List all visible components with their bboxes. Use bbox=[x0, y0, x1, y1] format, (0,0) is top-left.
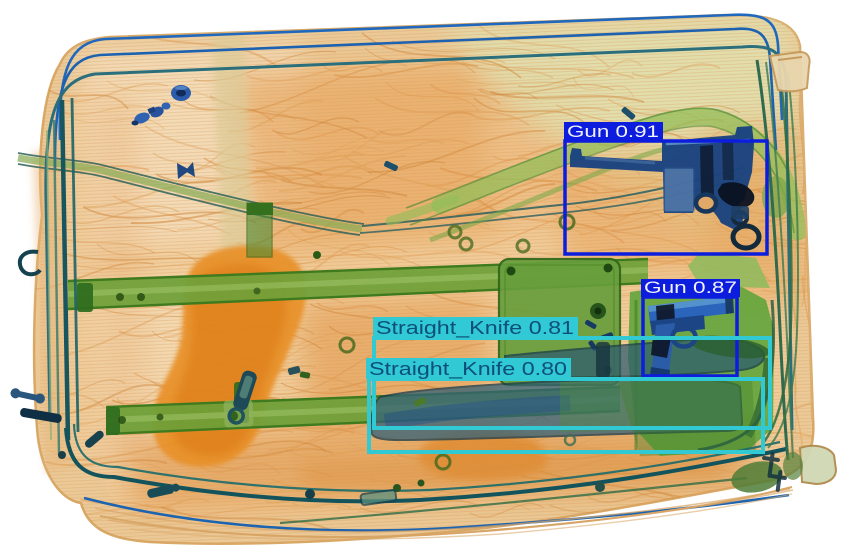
svg-text:Gun 0.87: Gun 0.87 bbox=[644, 278, 737, 297]
svg-text:Straight_Knife 0.81: Straight_Knife 0.81 bbox=[376, 318, 574, 339]
svg-text:Gun 0.91: Gun 0.91 bbox=[567, 122, 659, 141]
svg-text:Straight_Knife 0.80: Straight_Knife 0.80 bbox=[369, 359, 567, 380]
